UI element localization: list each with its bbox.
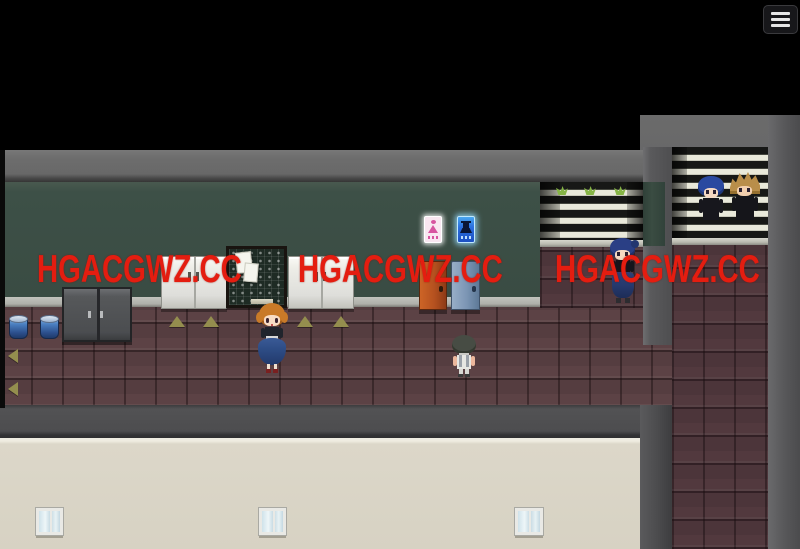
floor-arrow-up xyxy=(333,316,349,327)
hamburger-menu-icon xyxy=(771,12,790,15)
right-room-sill xyxy=(672,238,768,245)
divider-wall xyxy=(643,147,672,345)
female-restroom-sign xyxy=(424,216,442,243)
lower-wall-corner xyxy=(640,405,672,549)
floor-arrow-up xyxy=(203,316,219,327)
character-girl-orange-hair[interactable] xyxy=(255,302,289,374)
watermark-text-1: HGACGWZ.CC xyxy=(37,251,242,289)
character-student-blonde-hair-window[interactable] xyxy=(728,172,762,220)
gray-cabinet xyxy=(62,287,132,342)
character-student-blue-hair-window[interactable] xyxy=(696,176,726,220)
right-wall-strip xyxy=(768,115,800,549)
alcove-window-frame-right xyxy=(627,182,643,240)
right-room-blind-frame xyxy=(672,147,687,238)
floor-arrow-left xyxy=(8,349,18,363)
floor-arrow-up xyxy=(297,316,313,327)
lower-room-wall xyxy=(0,438,640,549)
lower-wall-band xyxy=(0,405,672,440)
hall-top-wall xyxy=(0,150,672,182)
divider-chalk-strip xyxy=(643,182,665,246)
menu-button[interactable] xyxy=(763,5,798,34)
floor-arrow-left xyxy=(8,382,18,396)
watermark-text-3: HGACGWZ.CC xyxy=(555,251,760,289)
watermark-text-2: HGACGWZ.CC xyxy=(298,251,503,289)
male-restroom-sign xyxy=(457,216,475,243)
map-edge-strip xyxy=(0,150,5,408)
small-window-1 xyxy=(36,508,63,535)
character-student-gray-hair[interactable] xyxy=(450,335,478,379)
small-window-3 xyxy=(515,508,543,535)
game-viewport[interactable]: HGACGWZ.CC HGACGWZ.CC HGACGWZ.CC xyxy=(0,0,800,549)
small-window-2 xyxy=(259,508,286,535)
floor-arrow-up xyxy=(169,316,185,327)
blue-bucket-2 xyxy=(40,316,59,339)
blue-bucket-1 xyxy=(9,316,28,339)
